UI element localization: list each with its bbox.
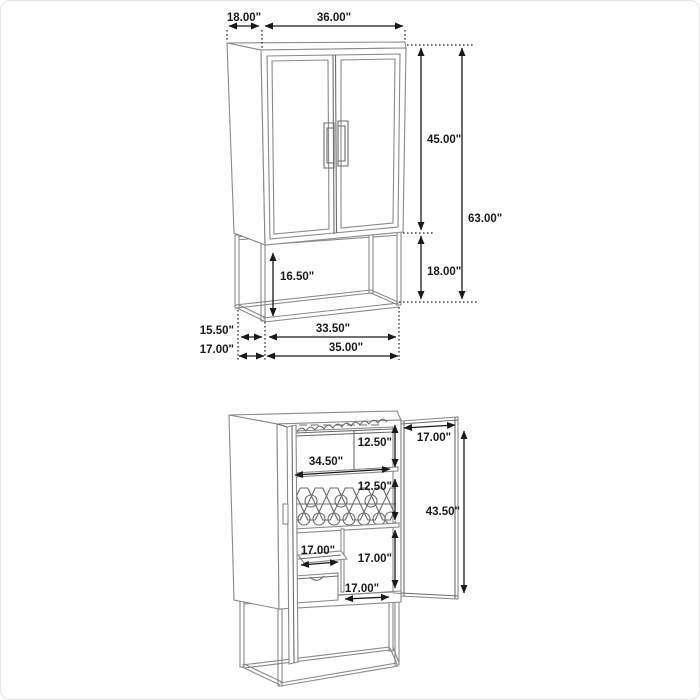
dim-rack-section-label: 12.50" <box>358 481 392 493</box>
dim-lower-section-label: 17.00" <box>358 553 392 565</box>
dim-door-height-label: 43.50" <box>426 506 460 518</box>
product-dimension-diagram: 18.00" 36.00" 45.00" 63.00" 18.00" 16.50… <box>0 0 700 700</box>
closed-view-diagram: 18.00" 36.00" 45.00" 63.00" 18.00" 16.50… <box>200 12 502 360</box>
lower-divider <box>341 529 344 592</box>
dim-upper-height-label: 45.00" <box>427 134 461 146</box>
dim-base-inner-width-label: 33.50" <box>316 323 350 335</box>
dim-total-height-label: 63.00" <box>468 213 502 225</box>
closed-cabinet-body <box>227 42 406 245</box>
dim-top-width-label: 36.00" <box>317 12 351 24</box>
dim-top-depth-label: 18.00" <box>227 12 261 24</box>
dim-base-height-label: 18.00" <box>427 266 461 278</box>
dim-top-section-label: 12.50" <box>358 437 392 449</box>
dim-tray-width-label: 17.00" <box>301 545 335 557</box>
dim-base-inner-depth-label: 15.50" <box>200 325 234 337</box>
dim-door-width-label: 17.00" <box>417 432 451 444</box>
drawer <box>295 573 338 603</box>
dim-shelf-width-label: 34.50" <box>309 456 343 468</box>
left-door-handle <box>283 504 288 524</box>
open-base-frame <box>240 595 399 686</box>
dim-base-outer-width-label: 35.00" <box>329 342 363 354</box>
open-view-diagram: 12.50" 12.50" 17.00" 34.50" 17.00" 17.00… <box>229 411 464 686</box>
dim-base-inner-height-label: 16.50" <box>280 271 314 283</box>
dim-base-outer-depth-label: 17.00" <box>200 344 234 356</box>
dim-bottom-width-label: 17.00" <box>345 583 379 595</box>
